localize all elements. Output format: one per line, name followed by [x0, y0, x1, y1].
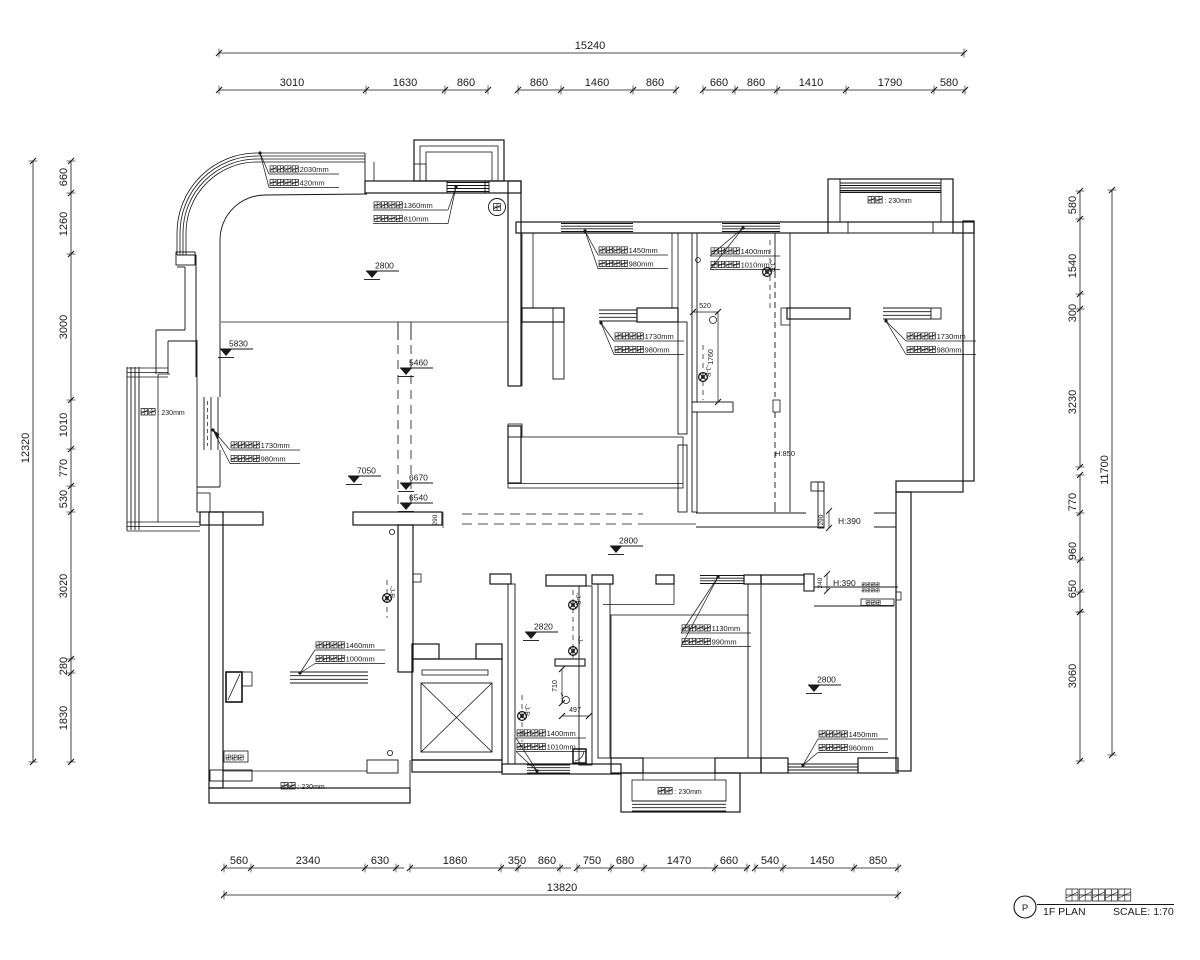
svg-text:1400mm: 1400mm [741, 247, 770, 256]
svg-text:3230: 3230 [1067, 390, 1079, 414]
svg-text:980mm: 980mm [937, 346, 962, 355]
svg-text:-J-R-: -J-R- [574, 593, 581, 607]
svg-text:1730mm: 1730mm [261, 441, 290, 450]
svg-text:300: 300 [1067, 304, 1079, 322]
svg-text:: 230mm: : 230mm [298, 784, 325, 791]
svg-text:980mm: 980mm [645, 346, 670, 355]
svg-text:990mm: 990mm [712, 638, 737, 647]
svg-text:1450mm: 1450mm [849, 730, 878, 739]
svg-text:-J-R-: -J-R- [523, 704, 530, 718]
svg-text:680: 680 [616, 855, 634, 867]
svg-text:11700: 11700 [1099, 455, 1111, 485]
svg-text:770: 770 [58, 459, 70, 477]
svg-text:520: 520 [699, 303, 711, 310]
svg-text:1450: 1450 [810, 855, 834, 867]
svg-text:H:390: H:390 [838, 516, 861, 526]
svg-text:2800: 2800 [619, 536, 638, 546]
svg-text:-J-: -J- [576, 636, 583, 644]
svg-text:980mm: 980mm [261, 455, 286, 464]
svg-text:12320: 12320 [20, 433, 32, 464]
svg-text:: 230mm: : 230mm [675, 789, 702, 796]
svg-text:1790: 1790 [878, 77, 902, 89]
svg-text:1F PLAN: 1F PLAN [1043, 906, 1086, 918]
svg-text:650: 650 [1067, 580, 1079, 598]
svg-text:660: 660 [710, 77, 728, 89]
svg-text:-J-R-: -J-R- [388, 586, 395, 600]
svg-text:960mm: 960mm [849, 744, 874, 753]
svg-text:2340: 2340 [296, 855, 320, 867]
svg-text:1130mm: 1130mm [712, 624, 741, 633]
svg-text:1860: 1860 [443, 855, 467, 867]
svg-text:: 230mm: : 230mm [885, 198, 912, 205]
svg-text:750: 750 [583, 855, 601, 867]
svg-text:1410: 1410 [799, 77, 823, 89]
svg-text:1360mm: 1360mm [404, 201, 433, 210]
svg-text:1540: 1540 [1067, 254, 1079, 278]
svg-text:P: P [1022, 903, 1028, 914]
svg-text:2820: 2820 [534, 622, 553, 632]
svg-text:860: 860 [747, 77, 765, 89]
svg-text:6670: 6670 [409, 473, 428, 483]
svg-text:580: 580 [1067, 196, 1079, 214]
svg-text:-J-R-: -J-R- [704, 365, 711, 379]
svg-text:810mm: 810mm [404, 215, 429, 224]
svg-text:980mm: 980mm [629, 260, 654, 269]
svg-text:1460mm: 1460mm [346, 641, 375, 650]
svg-text:-J-R-: -J-R- [768, 260, 775, 274]
svg-text:860: 860 [457, 77, 475, 89]
svg-text:SCALE: 1:70: SCALE: 1:70 [1113, 906, 1174, 918]
svg-text:1260: 1260 [58, 212, 70, 236]
svg-text:630: 630 [371, 855, 389, 867]
svg-text:1730mm: 1730mm [645, 332, 674, 341]
svg-text:497: 497 [569, 707, 581, 714]
svg-text:3000: 3000 [58, 315, 70, 339]
svg-text:3060: 3060 [1067, 664, 1079, 688]
svg-text:850: 850 [869, 855, 887, 867]
svg-text:1830: 1830 [58, 706, 70, 730]
svg-text:1730mm: 1730mm [937, 332, 966, 341]
svg-text:5460: 5460 [409, 358, 428, 368]
svg-text:770: 770 [1067, 493, 1079, 511]
svg-text:710: 710 [552, 680, 559, 692]
svg-text:580: 580 [940, 77, 958, 89]
svg-text:7050: 7050 [357, 466, 376, 476]
svg-text:3020: 3020 [58, 574, 70, 598]
svg-text:290: 290 [818, 514, 825, 525]
svg-text:2800: 2800 [375, 261, 394, 271]
svg-text:1450mm: 1450mm [629, 246, 658, 255]
svg-text:13820: 13820 [547, 882, 578, 894]
svg-text:660: 660 [58, 168, 70, 186]
svg-text:420mm: 420mm [300, 179, 325, 188]
svg-text:H:390: H:390 [833, 578, 856, 588]
svg-text:530: 530 [58, 490, 70, 508]
svg-text:240: 240 [817, 577, 824, 588]
svg-text:290: 290 [432, 514, 439, 525]
svg-text:860: 860 [646, 77, 664, 89]
svg-text:350: 350 [508, 855, 526, 867]
svg-text:860: 860 [530, 77, 548, 89]
svg-text:6540: 6540 [409, 493, 428, 503]
svg-text:1000mm: 1000mm [346, 655, 375, 664]
svg-text:560: 560 [230, 855, 248, 867]
svg-text:1760: 1760 [708, 349, 715, 365]
svg-text:1630: 1630 [393, 77, 417, 89]
svg-text:860: 860 [538, 855, 556, 867]
svg-text:H:850: H:850 [775, 449, 795, 458]
svg-text:: 230mm: : 230mm [158, 410, 185, 417]
svg-text:1010: 1010 [58, 413, 70, 437]
svg-text:540: 540 [761, 855, 779, 867]
svg-text:2030mm: 2030mm [300, 165, 329, 174]
svg-text:660: 660 [720, 855, 738, 867]
svg-text:5830: 5830 [229, 339, 248, 349]
svg-text:280: 280 [58, 657, 70, 675]
svg-text:15240: 15240 [575, 40, 606, 52]
svg-text:3010: 3010 [280, 77, 304, 89]
svg-text:1400mm: 1400mm [547, 729, 576, 738]
svg-text:960: 960 [1067, 542, 1079, 560]
svg-text:1010mm: 1010mm [547, 743, 576, 752]
svg-text:1470: 1470 [667, 855, 691, 867]
svg-text:1460: 1460 [585, 77, 609, 89]
svg-text:2800: 2800 [817, 675, 836, 685]
